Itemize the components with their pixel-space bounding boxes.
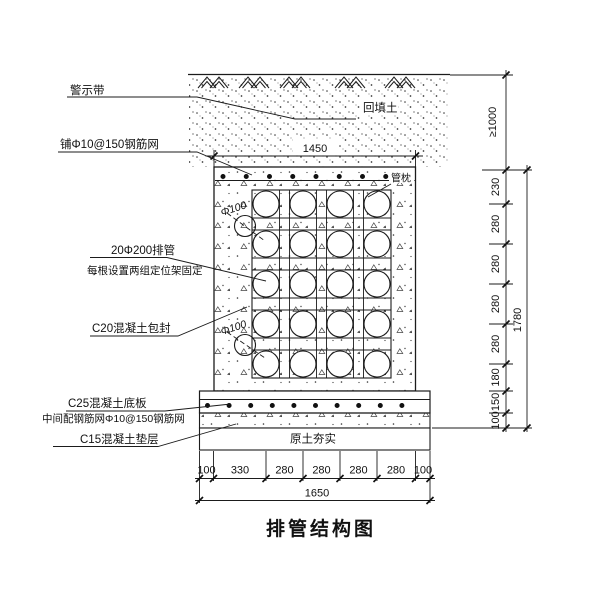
drawing-title: 排管结构图 <box>266 517 376 540</box>
pipe-circle <box>290 351 316 377</box>
label-base-slab-note: 中间配钢筋网Φ10@150钢筋网 <box>42 412 185 425</box>
pipe-circle <box>364 271 390 297</box>
dim-right-total: 1780 <box>512 308 524 332</box>
label-warning-tape: 警示带 <box>70 83 105 97</box>
label-encasement: C20混凝土包封 <box>92 321 171 335</box>
dim-bottom-seg-1: 330 <box>231 465 249 477</box>
label-pipe-pillow: 管枕 <box>391 172 411 185</box>
dim-bottom-seg-4: 280 <box>349 465 367 477</box>
label-pipes: 20Φ200排管 <box>111 243 175 257</box>
label-backfill: 回填土 <box>363 101 398 115</box>
pipe-circle <box>327 311 353 337</box>
pipe-circle <box>253 311 279 337</box>
dim-right-seg-1: 280 <box>490 215 502 233</box>
dim-bottom-seg-0: 100 <box>197 465 215 477</box>
label-compacted-soil: 原土夯实 <box>290 432 336 446</box>
pipe-circle <box>290 231 316 257</box>
pipe-circle <box>364 231 390 257</box>
pipe-circle <box>290 191 316 217</box>
pipe-circle <box>364 311 390 337</box>
pipe-circle <box>253 271 279 297</box>
dim-bottom-seg-3: 280 <box>312 465 330 477</box>
dim-right-seg-5: 180 <box>490 368 502 386</box>
dim-min-cover: ≥1000 <box>487 107 499 138</box>
label-top-mesh: 铺Φ10@150钢筋网 <box>60 137 159 151</box>
dim-bottom-seg-5: 280 <box>387 465 405 477</box>
dim-top-width: 1450 <box>303 143 327 155</box>
pipe-circle <box>253 191 279 217</box>
pipe-circle <box>290 271 316 297</box>
pipe-circle <box>364 351 390 377</box>
base-slab <box>200 391 431 413</box>
dim-right-seg-2: 280 <box>490 255 502 273</box>
label-base-slab: C25混凝土底板 <box>68 396 147 410</box>
dim-right-seg-7: 100 <box>490 411 502 429</box>
dim-right-seg-3: 280 <box>490 295 502 313</box>
pipe-circle <box>327 191 353 217</box>
dim-bottom-total: 1650 <box>305 488 329 500</box>
dim-bottom-seg-2: 280 <box>275 465 293 477</box>
drawing-canvas: 警示带 铺Φ10@150钢筋网 20Φ200排管 每根设置两组定位架固定 C20… <box>0 0 600 600</box>
pipe-circle <box>290 311 316 337</box>
pipe-duct-section-drawing: 警示带 铺Φ10@150钢筋网 20Φ200排管 每根设置两组定位架固定 C20… <box>0 0 600 600</box>
label-pipes-note: 每根设置两组定位架固定 <box>87 264 203 277</box>
pipe-circle <box>327 231 353 257</box>
cushion-layer <box>200 413 431 428</box>
dim-right-seg-0: 230 <box>490 178 502 196</box>
pipe-circle <box>253 351 279 377</box>
dim-right-seg-4: 280 <box>490 335 502 353</box>
pipe-circle <box>364 191 390 217</box>
pipe-circle <box>327 271 353 297</box>
label-cushion: C15混凝土垫层 <box>80 432 159 446</box>
dim-bottom-texts: 100 330 280 280 280 280 100 1650 <box>197 465 432 500</box>
dim-right-seg-6: 150 <box>490 393 502 411</box>
dim-right-texts: ≥1000 230 280 280 280 280 180 150 100 17… <box>487 107 524 430</box>
pipe-circle <box>327 351 353 377</box>
dim-bottom-seg-6: 100 <box>414 465 432 477</box>
pipe-circle <box>253 231 279 257</box>
